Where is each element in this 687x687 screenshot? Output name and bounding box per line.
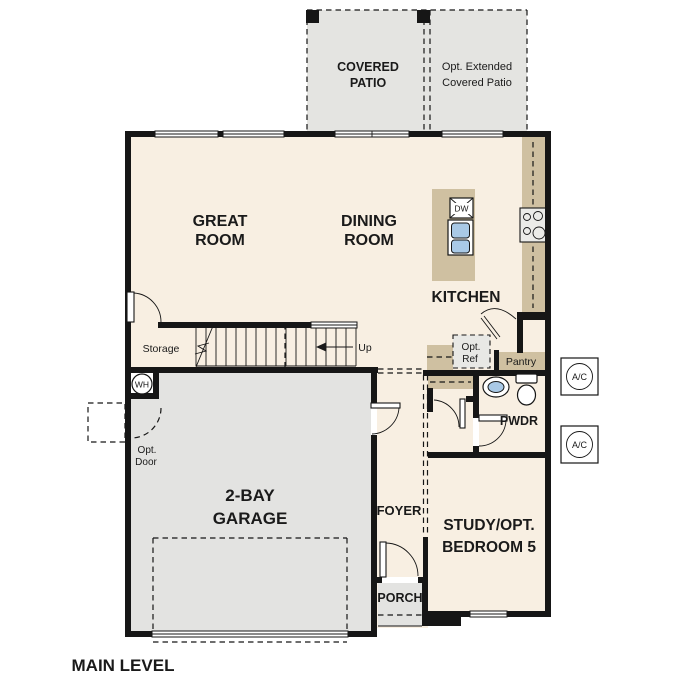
study-label-line1: STUDY/OPT. <box>443 517 534 534</box>
toilet <box>516 374 537 405</box>
garage-label-line2: GARAGE <box>213 509 288 528</box>
covered-patio-label-line2: PATIO <box>350 76 387 90</box>
powder-sink <box>483 377 509 397</box>
patio-post-left <box>306 10 319 23</box>
opt-door-label-line1: Opt. <box>138 445 157 456</box>
dining-room-label-line2: ROOM <box>344 232 394 249</box>
pwdr-label: PWDR <box>500 414 538 428</box>
page-title: MAIN LEVEL <box>72 656 175 675</box>
opt-door-label-line2: Door <box>135 457 157 468</box>
porch-label: PORCH <box>377 591 422 605</box>
garage-label-line1: 2-BAY <box>225 486 275 505</box>
opt-ref-label-line2: Ref <box>462 354 478 365</box>
dining-room-label-line1: DINING <box>341 213 397 230</box>
floor-plan-drawing: COVERED PATIO Opt. Extended Covered Pati… <box>0 0 687 687</box>
foyer-label: FOYER <box>377 503 422 518</box>
great-room-label-line1: GREAT <box>193 213 248 230</box>
ac-label-2: A/C <box>572 440 588 450</box>
wh-label: WH <box>135 380 149 390</box>
storage-label: Storage <box>143 343 180 355</box>
dw-label: DW <box>454 204 468 214</box>
ext-patio-label-line1: Opt. Extended <box>442 61 512 73</box>
kitchen-label: KITCHEN <box>432 289 501 306</box>
covered-patio-label-line1: COVERED <box>337 60 399 74</box>
study-label-line2: BEDROOM 5 <box>442 539 536 556</box>
up-label: Up <box>358 342 372 354</box>
opt-ref-label-line1: Opt. <box>462 342 481 353</box>
island-sink <box>448 220 473 255</box>
ac-label-1: A/C <box>572 372 588 382</box>
floor-plan-page: COVERED PATIO Opt. Extended Covered Pati… <box>0 0 687 687</box>
great-room-label-line2: ROOM <box>195 232 245 249</box>
stove-cooktop <box>520 208 546 242</box>
ext-patio-label-line2: Covered Patio <box>442 77 512 89</box>
patio-post-right <box>417 10 430 23</box>
pantry-label: Pantry <box>506 356 537 368</box>
